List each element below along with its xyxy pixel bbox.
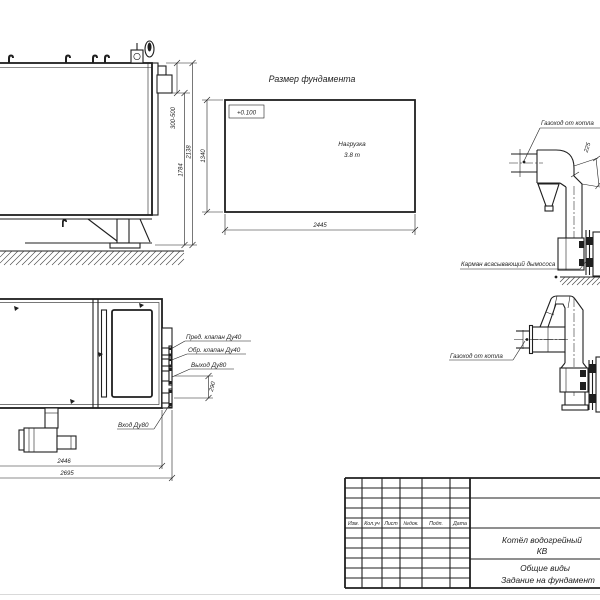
access-door [112, 310, 152, 397]
dim-foundation-width: 1340 [201, 149, 207, 163]
port-spacing-dimension: 290 [174, 373, 217, 401]
doc-type-line2: Задание на фундамент [501, 575, 595, 585]
panel-slot [102, 310, 107, 397]
top-valve-icon [131, 41, 154, 63]
load-label-line2: 3.8 т [344, 152, 361, 159]
dim-port-spacing: 290 [209, 380, 218, 393]
dim-plan-total-length: 2695 [59, 471, 74, 477]
cyclone-pocket [537, 150, 582, 238]
dim-body-height: 1784 [179, 163, 185, 177]
safety-valve-label: Пред. клапан Ду40 [186, 333, 242, 341]
leader-dot [526, 338, 529, 341]
inlet-label: Вход Ду80 [118, 421, 149, 429]
dim-plan-body-length: 2446 [56, 459, 71, 465]
flue-width-dimension: 225 [574, 141, 600, 189]
outlet-label: Выход Ду80 [191, 361, 227, 369]
boiler-plan-view: Пред. клапан Ду40 Обр. клапан Ду40 Выход… [0, 299, 251, 481]
product-name-line1: Котёл водогрейный [502, 535, 582, 545]
ground-hatch [0, 251, 184, 265]
doc-type-line1: Общие виды [520, 563, 570, 573]
pocket-label: Карман всасывающий дымососа [461, 261, 556, 268]
dim-total-height: 2138 [187, 145, 193, 160]
col-koluch: Кол.уч [364, 521, 380, 527]
title-block: Изм. Кол.уч Лист №док. Подп. Дата Котёл … [345, 478, 600, 588]
col-ndok: №док. [403, 521, 418, 527]
title-block-headers: Изм. Кол.уч Лист №док. Подп. Дата [348, 521, 467, 527]
col-list: Лист [383, 521, 398, 527]
safety-valve-stub [162, 346, 172, 357]
boiler-side-view: 300-500 1784 2138 [0, 41, 197, 265]
col-podp: Подп. [429, 521, 443, 527]
flue-ground-hatch [560, 277, 600, 285]
smoke-exhauster-lower [560, 357, 600, 412]
product-name-line2: КВ [537, 546, 548, 556]
check-valve-label: Обр. клапан Ду40 [188, 346, 241, 354]
lifting-hooks-icon [8, 55, 110, 64]
load-label-line1: Нагрузка [338, 141, 366, 148]
dim-foundation-length: 2445 [312, 223, 327, 229]
elevation-mark: +0.100 [237, 110, 257, 117]
drawing-canvas: 300-500 1784 2138 Размер фундамента +0.1… [0, 0, 600, 600]
flue-duct-label-lower: Газоход от котла [450, 353, 503, 360]
check-valve-stub [162, 357, 172, 368]
drawing-sheet: 300-500 1784 2138 Размер фундамента +0.1… [0, 0, 600, 600]
support-frame [0, 219, 152, 248]
col-izm: Изм. [348, 521, 359, 527]
foundation-title: Размер фундамента [269, 74, 356, 84]
dim-nozzle-height: 300-500 [171, 106, 177, 129]
foundation-plan: Размер фундамента +0.100 Нагрузка 3.8 т … [201, 74, 418, 235]
burner [19, 408, 76, 452]
col-data: Дата [452, 521, 467, 527]
flue-duct-lower-view: Газоход от котла [449, 296, 600, 412]
flue-duct-label-upper: Газоход от котла [541, 120, 594, 127]
flue-duct-upper-view: Газоход от котла [460, 120, 600, 285]
rear-nozzle [157, 66, 172, 93]
dim-flue-width: 225 [583, 141, 592, 154]
